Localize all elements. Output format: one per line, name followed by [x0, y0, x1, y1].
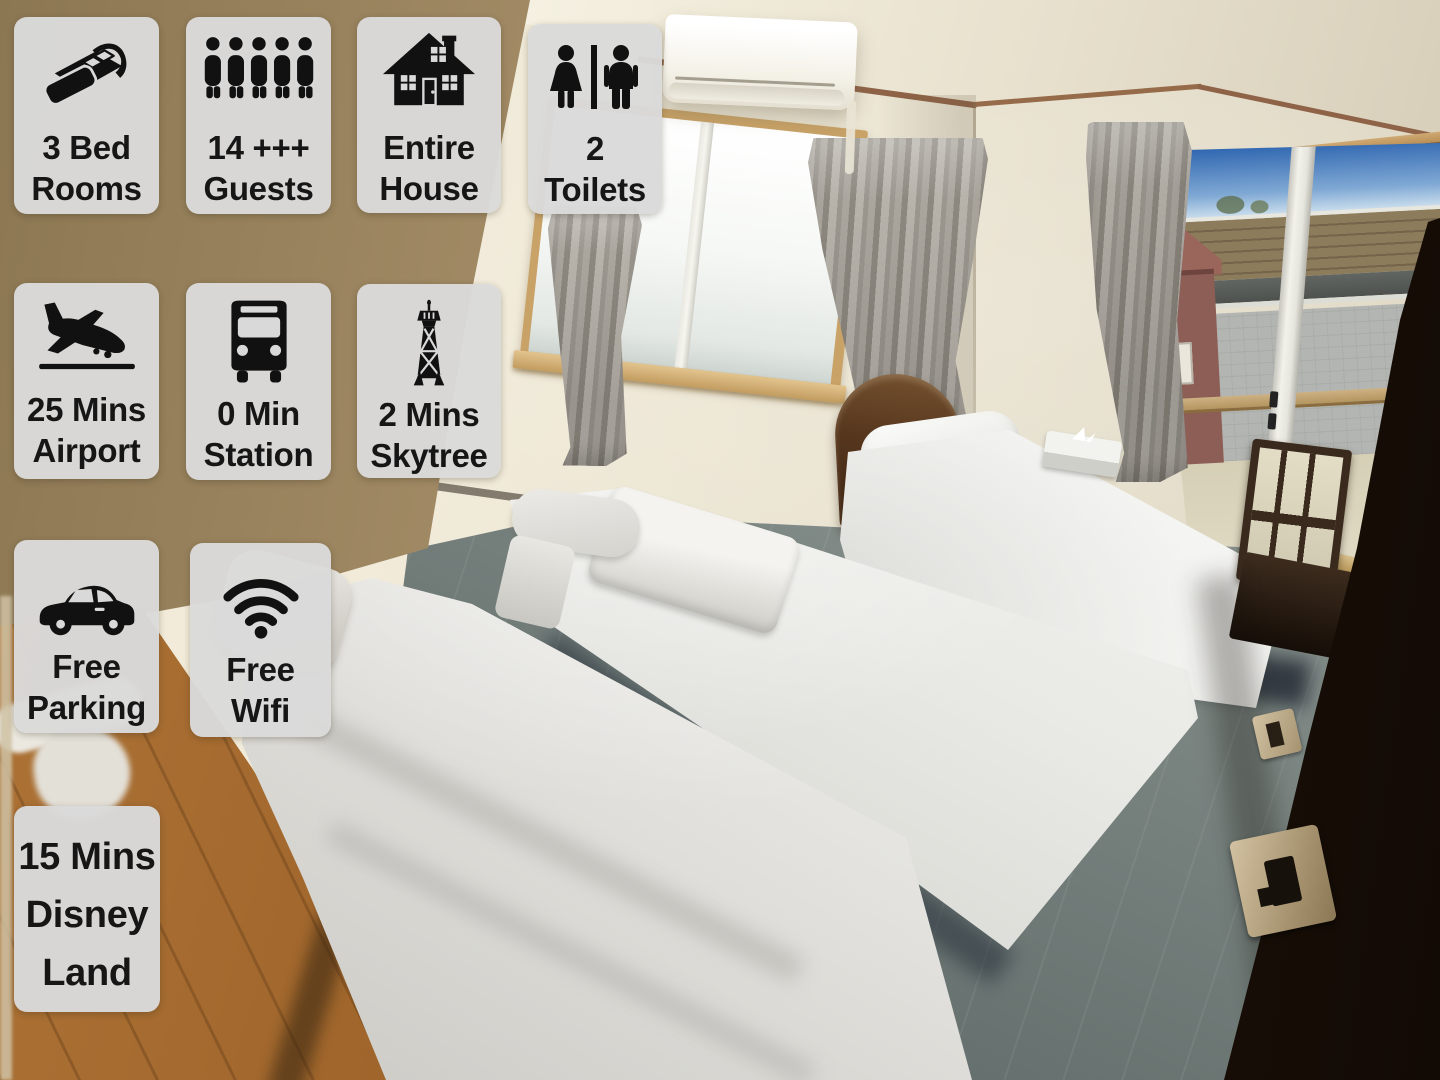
- badge-station: 0 MinStation: [186, 283, 331, 480]
- badge-bedrooms: 3 BedRooms: [14, 17, 159, 214]
- listing-photo: 3 BedRooms 14 +++Guests: [0, 0, 1440, 1080]
- door-frame-edge: [0, 596, 12, 1080]
- badge-free-wifi: FreeWifi: [190, 543, 331, 737]
- badge-label: 0 MinStation: [204, 393, 314, 475]
- badge-free-parking: FreeParking: [14, 540, 159, 733]
- badge-label: 14 +++Guests: [203, 127, 313, 209]
- badge-toilets: 2Toilets: [528, 24, 662, 214]
- badge-label: FreeWifi: [226, 649, 295, 731]
- badge-guests: 14 +++Guests: [186, 17, 331, 214]
- badge-label: 2Toilets: [544, 128, 646, 210]
- airplane-landing-icon: [35, 295, 139, 387]
- badge-disneyland: 15 MinsDisneyLand: [14, 806, 160, 1012]
- badge-label: 2 MinsSkytree: [370, 394, 487, 476]
- badge-skytree: 2 MinsSkytree: [357, 284, 501, 478]
- guests-icon: [199, 29, 319, 125]
- wifi-icon: [211, 559, 311, 647]
- strike-slot: [1266, 721, 1285, 748]
- badge-label: 25 MinsAirport: [27, 389, 146, 471]
- toilets-icon: [545, 38, 645, 126]
- house-icon: [377, 29, 481, 125]
- window-handle: [1269, 391, 1278, 408]
- badge-airport: 25 MinsAirport: [14, 283, 159, 479]
- badge-label: 15 MinsDisneyLand: [18, 828, 155, 1002]
- badge-label: EntireHouse: [379, 127, 478, 209]
- skytree-tower-icon: [384, 296, 474, 392]
- window-handle: [1267, 413, 1276, 430]
- bed-icon: [33, 29, 141, 125]
- badge-entire-house: EntireHouse: [357, 17, 501, 213]
- badge-label: FreeParking: [27, 646, 146, 728]
- bus-icon: [213, 295, 305, 391]
- air-conditioner: [662, 14, 858, 111]
- badge-label: 3 BedRooms: [31, 127, 141, 209]
- car-icon: [32, 556, 142, 644]
